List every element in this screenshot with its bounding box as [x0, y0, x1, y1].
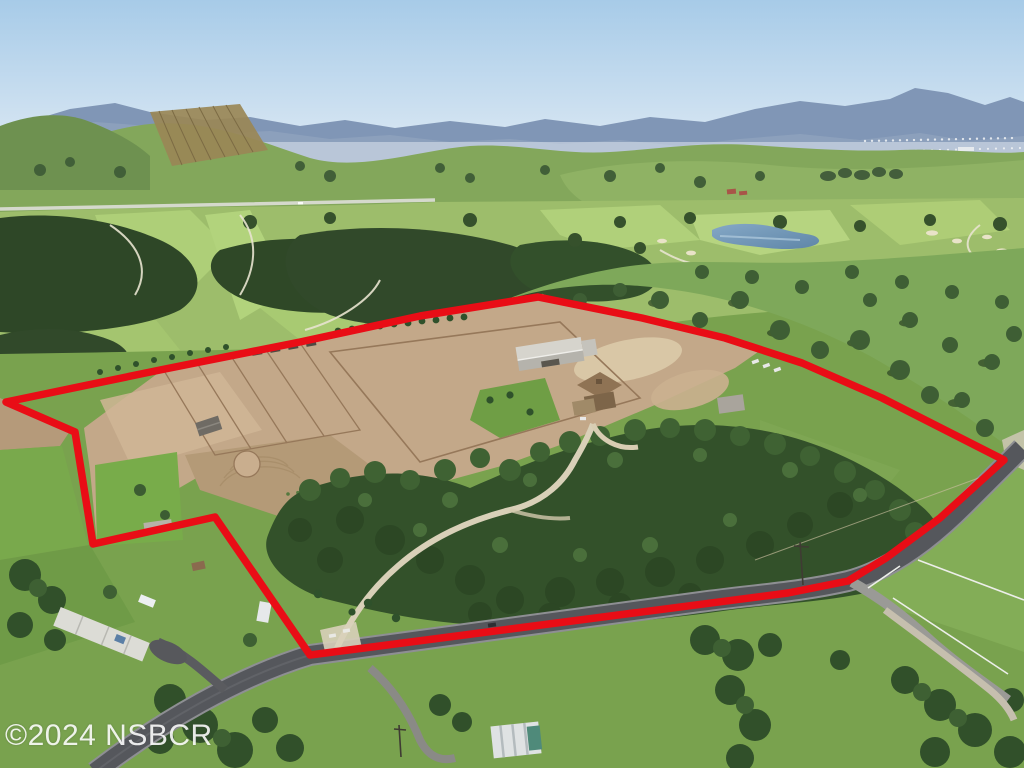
photo-canvas [0, 0, 1024, 768]
aerial-photo: ©2024 NSBCR [0, 0, 1024, 768]
round-pen [234, 451, 260, 477]
metal-shed [490, 721, 542, 758]
watermark: ©2024 NSBCR [5, 719, 213, 753]
